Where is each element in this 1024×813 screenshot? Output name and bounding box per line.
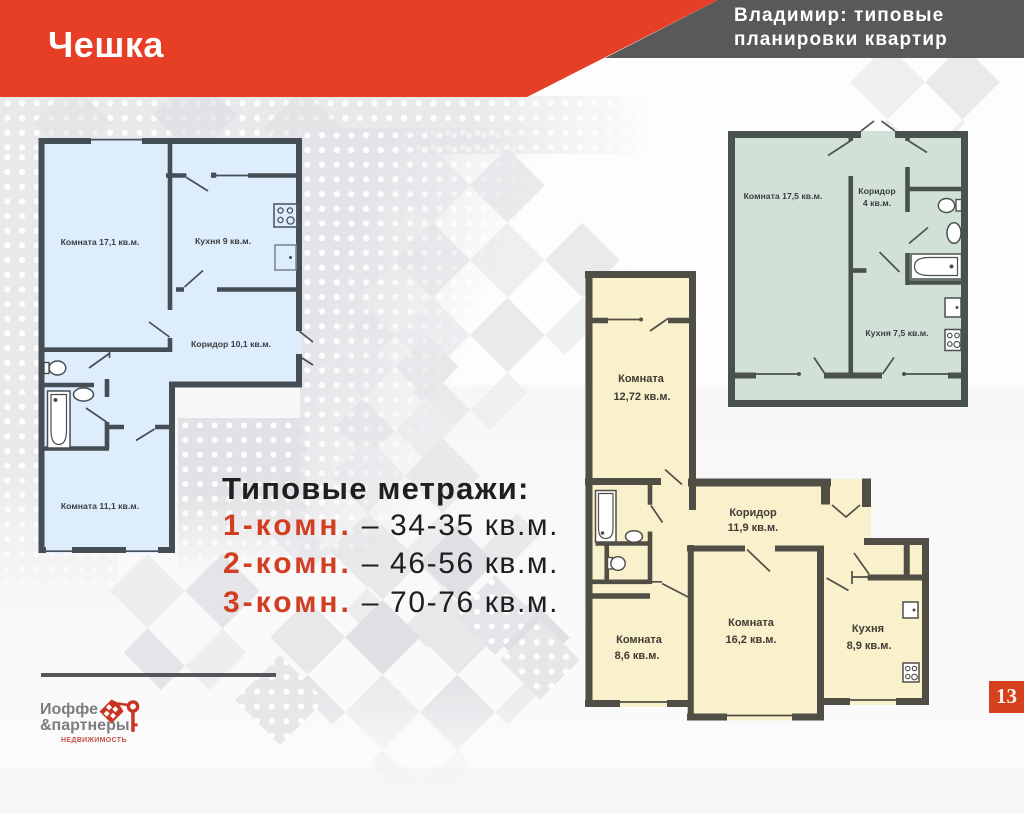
svg-text:4 кв.м.: 4 кв.м.: [863, 198, 891, 208]
svg-text:Кухня: Кухня: [852, 623, 884, 635]
svg-text:Комната: Комната: [616, 634, 663, 646]
svg-text:16,2 кв.м.: 16,2 кв.м.: [726, 634, 777, 646]
svg-text:8,9 кв.м.: 8,9 кв.м.: [847, 640, 892, 652]
svg-text:Комната 17,5 кв.м.: Комната 17,5 кв.м.: [744, 191, 823, 201]
svg-text:Комната 11,1 кв.м.: Комната 11,1 кв.м.: [61, 501, 139, 511]
svg-text:11,9 кв.м.: 11,9 кв.м.: [728, 522, 778, 534]
svg-text:Комната: Комната: [728, 617, 775, 629]
svg-text:Кухня 9 кв.м.: Кухня 9 кв.м.: [195, 236, 251, 246]
svg-text:Коридор 10,1 кв.м.: Коридор 10,1 кв.м.: [191, 339, 271, 349]
svg-text:Комната 17,1 кв.м.: Комната 17,1 кв.м.: [61, 237, 140, 247]
svg-text:Коридор: Коридор: [858, 186, 895, 196]
svg-text:Коридор: Коридор: [729, 507, 777, 519]
svg-text:Комната: Комната: [618, 373, 665, 385]
svg-text:8,6 кв.м.: 8,6 кв.м.: [615, 650, 660, 662]
svg-text:12,72 кв.м.: 12,72 кв.м.: [613, 391, 670, 403]
